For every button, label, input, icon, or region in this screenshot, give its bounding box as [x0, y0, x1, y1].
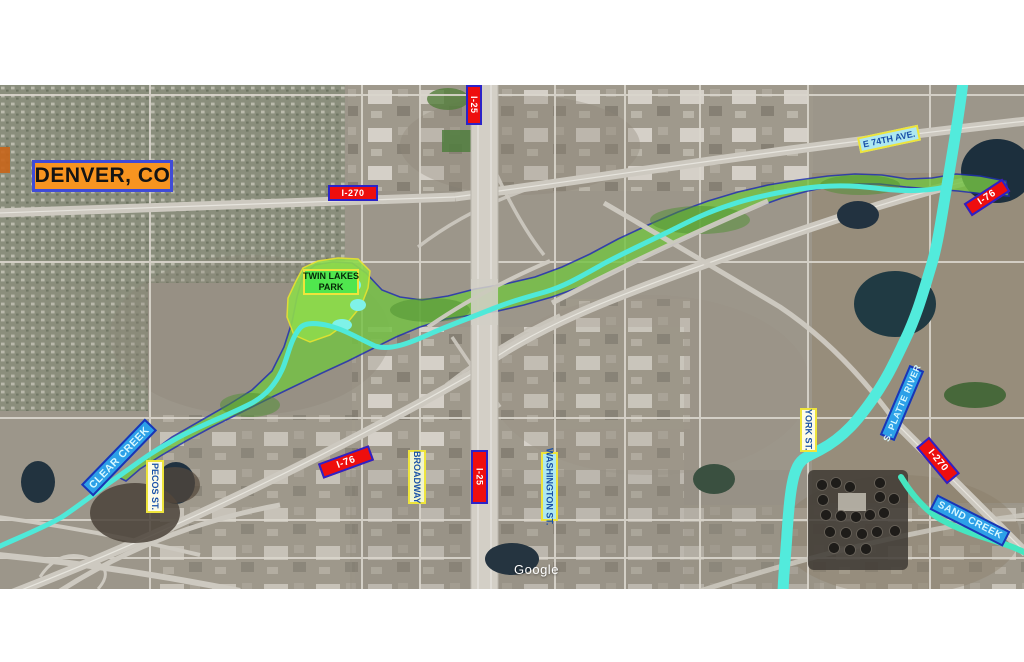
- york-st-label: YORK ST.: [800, 408, 817, 452]
- google-watermark: Google: [514, 562, 559, 577]
- treatment-plant: [808, 470, 908, 570]
- twin-lakes-park-label: TWIN LAKES PARK: [303, 269, 359, 295]
- interstate-25-north-label: I-25: [466, 85, 482, 125]
- i25-freeway: [471, 85, 498, 589]
- city-title-label: DENVER, CO: [32, 160, 173, 192]
- interstate-25-central-label: I-25: [471, 450, 488, 504]
- interstate-270-west-label: I-270: [328, 185, 378, 201]
- broadway-label: BROADWAY: [408, 450, 426, 504]
- washington-st-label: WASHINGTON ST.: [541, 452, 558, 521]
- map-slide: DENVER, CO I-270 I-25 E 74TH AVE. I-76 T…: [0, 0, 1024, 662]
- pecos-st-label: PECOS ST.: [146, 460, 164, 513]
- satellite-map: DENVER, CO I-270 I-25 E 74TH AVE. I-76 T…: [0, 85, 1024, 589]
- twin-lakes-park-line1: TWIN LAKES: [303, 271, 359, 282]
- twin-lakes-park-line2: PARK: [319, 282, 344, 293]
